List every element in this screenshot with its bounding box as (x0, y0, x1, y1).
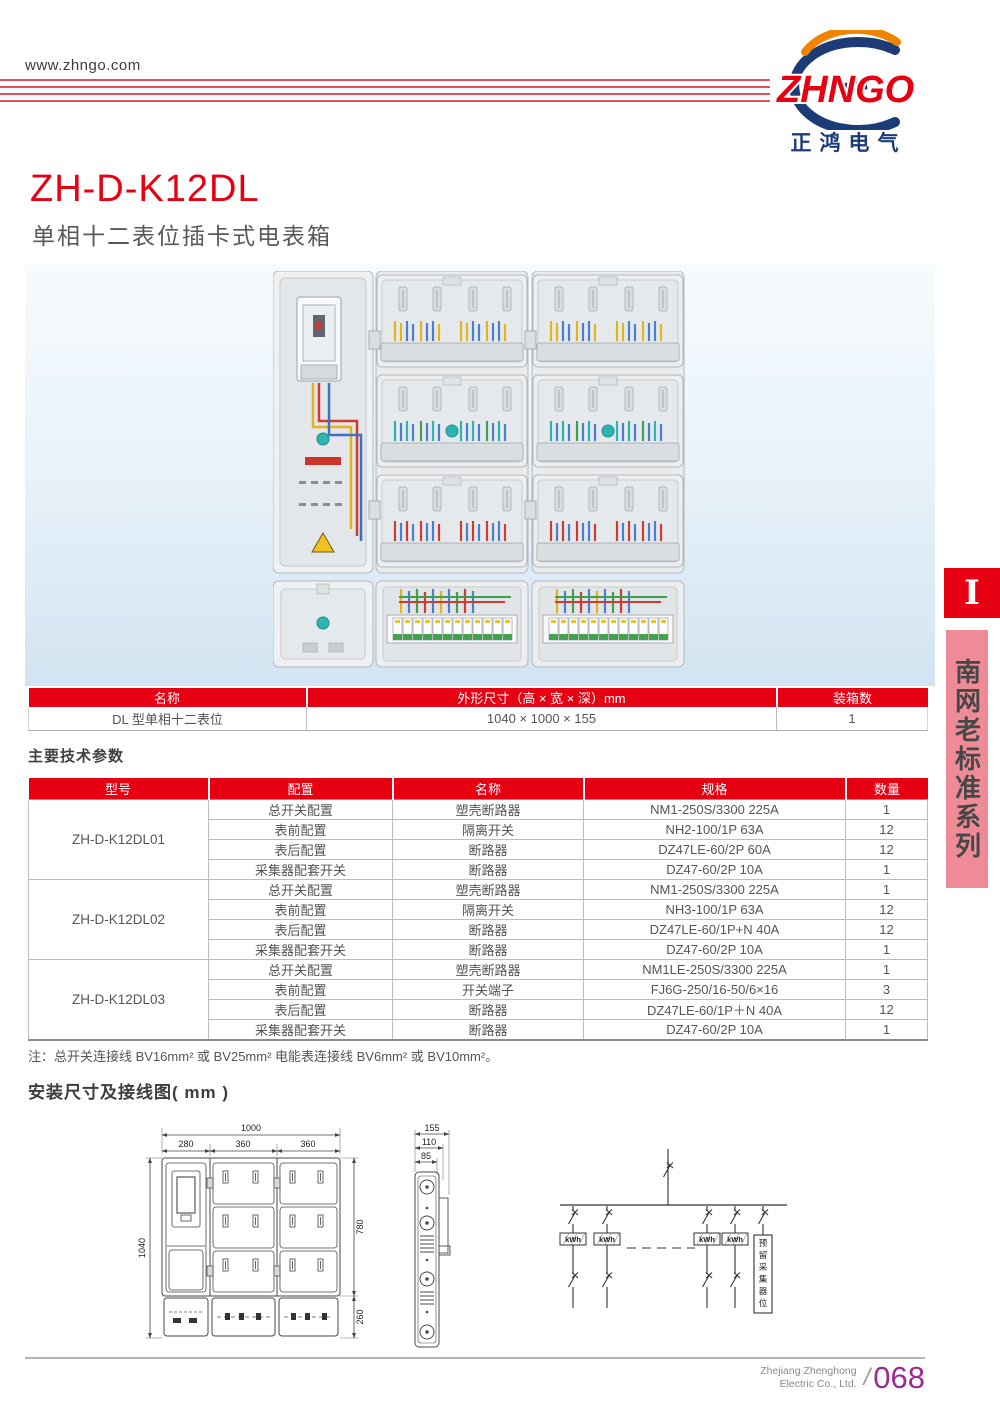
cell-name: 塑壳断路器 (393, 799, 584, 819)
dim-360: 360 (235, 1139, 250, 1149)
meterbox-left-column (273, 271, 373, 573)
cell-qty: 12 (846, 899, 928, 919)
svg-text:预: 预 (759, 1238, 768, 1248)
kwh-meter-label: kWh (699, 1235, 715, 1244)
website-url: www.zhngo.com (25, 57, 141, 74)
company-line2: Electric Co., Ltd. (760, 1378, 856, 1391)
collector-label: 预 留 采 集 器 位 (759, 1238, 768, 1308)
params-header-qty: 数量 (846, 778, 928, 799)
meterbox-right-column (532, 271, 684, 573)
cell-spec: FJ6G-250/16-50/6×16 (584, 979, 846, 999)
spec-header-qty: 装箱数 (777, 688, 928, 707)
cell-config: 采集器配套开关 (209, 1019, 393, 1040)
svg-text:器: 器 (759, 1286, 768, 1296)
cell-config: 总开关配置 (209, 799, 393, 819)
table-row: ZH-D-K12DL03 总开关配置 塑壳断路器 NM1LE-250S/3300… (29, 959, 928, 979)
cell-name: 断路器 (393, 859, 584, 879)
kwh-meter-label: kWh (565, 1235, 581, 1244)
spec-table-row: DL 型单相十二表位 1040 × 1000 × 155 1 (29, 707, 928, 730)
dim-780: 780 (355, 1219, 365, 1234)
spec-header-name: 名称 (29, 688, 307, 707)
model-cell: ZH-D-K12DL01 (29, 799, 209, 879)
cell-name: 开关端子 (393, 979, 584, 999)
cell-config: 采集器配套开关 (209, 939, 393, 959)
spec-cell-name: DL 型单相十二表位 (29, 707, 307, 730)
model-cell: ZH-D-K12DL02 (29, 879, 209, 959)
cell-name: 断路器 (393, 939, 584, 959)
cell-name: 隔离开关 (393, 819, 584, 839)
cell-qty: 12 (846, 999, 928, 1019)
wiring-diagram: kWh kWh kWh kWh 预 留 采 集 器 位 (535, 1143, 815, 1355)
catalog-page: www.zhngo.com ZHNGO 正鸿电气 ZH-D-K12DL 单相十二… (0, 0, 1000, 1421)
spec-cell-qty: 1 (777, 707, 928, 730)
cell-spec: DZ47-60/2P 10A (584, 1019, 846, 1040)
rule-line (0, 93, 770, 95)
cell-spec: NM1-250S/3300 225A (584, 799, 846, 819)
company-line1: Zhejiang Zhenghong (760, 1365, 856, 1378)
cell-qty: 1 (846, 959, 928, 979)
dim-1000: 1000 (241, 1123, 261, 1133)
front-view-drawing: 1000 280 360 360 1040 780 260 (125, 1120, 410, 1363)
dim-280: 280 (178, 1139, 193, 1149)
cell-name: 隔离开关 (393, 899, 584, 919)
svg-text:采: 采 (759, 1262, 768, 1272)
cell-qty: 1 (846, 879, 928, 899)
dim-360b: 360 (300, 1139, 315, 1149)
company-logo: ZHNGO 正鸿电气 (747, 30, 942, 156)
spec-cell-size: 1040 × 1000 × 155 (307, 707, 777, 730)
cell-spec: DZ47-60/2P 10A (584, 939, 846, 959)
series-vertical-tab: 南网老标准系列 (946, 630, 988, 888)
side-view-drawing: 155 110 85 (403, 1120, 515, 1360)
footer: Zhejiang Zhenghong Electric Co., Ltd. / … (760, 1362, 925, 1393)
cell-spec: NM1-250S/3300 225A (584, 879, 846, 899)
cell-name: 断路器 (393, 1019, 584, 1040)
rule-line (0, 79, 770, 81)
params-header-spec: 规格 (584, 778, 846, 799)
cell-spec: DZ47-60/2P 10A (584, 859, 846, 879)
cell-spec: NH3-100/1P 63A (584, 899, 846, 919)
rule-line (0, 86, 770, 88)
params-table: 型号 配置 名称 规格 数量 ZH-D-K12DL01 总开关配置 塑壳断路器 … (28, 778, 928, 1041)
kwh-meter-label: kWh (727, 1235, 743, 1244)
svg-text:位: 位 (759, 1298, 768, 1308)
spec-header-size: 外形尺寸（高 × 宽 × 深）mm (307, 688, 777, 707)
product-photo (273, 271, 688, 669)
section-index-tab: I (944, 568, 1000, 618)
logo-swoosh-graphic: ZHNGO (747, 30, 942, 130)
params-section-title: 主要技术参数 (28, 745, 124, 766)
meter-branches (560, 1206, 748, 1308)
footer-slash: / (864, 1364, 871, 1392)
cell-spec: NM1LE-250S/3300 225A (584, 959, 846, 979)
dim-1040: 1040 (137, 1238, 147, 1258)
dim-155: 155 (424, 1123, 439, 1133)
cell-qty: 1 (846, 859, 928, 879)
params-header-model: 型号 (29, 778, 209, 799)
params-header-row: 型号 配置 名称 规格 数量 (29, 778, 928, 799)
dim-260: 260 (355, 1309, 365, 1324)
model-cell: ZH-D-K12DL03 (29, 959, 209, 1040)
page-subtitle: 单相十二表位插卡式电表箱 (32, 217, 332, 251)
params-header-config: 配置 (209, 778, 393, 799)
logo-brand-cn: 正鸿电气 (747, 127, 942, 157)
table-note: 注：总开关连接线 BV16mm² 或 BV25mm² 电能表连接线 BV6mm²… (28, 1046, 498, 1065)
table-row: ZH-D-K12DL01 总开关配置 塑壳断路器 NM1-250S/3300 2… (29, 799, 928, 819)
spec-table: 名称 外形尺寸（高 × 宽 × 深）mm 装箱数 DL 型单相十二表位 1040… (28, 688, 928, 731)
front-view-hooks (223, 1171, 323, 1271)
cell-config: 表前配置 (209, 899, 393, 919)
cell-name: 断路器 (393, 999, 584, 1019)
cell-spec: DZ47LE-60/1P+N 40A (584, 919, 846, 939)
cell-qty: 12 (846, 839, 928, 859)
dim-110: 110 (422, 1137, 436, 1147)
cell-qty: 1 (846, 1019, 928, 1040)
cell-config: 总开关配置 (209, 879, 393, 899)
cell-config: 表前配置 (209, 819, 393, 839)
cell-config: 采集器配套开关 (209, 859, 393, 879)
header-rule-lines (0, 79, 770, 107)
cell-config: 表后配置 (209, 919, 393, 939)
spec-table-header-row: 名称 外形尺寸（高 × 宽 × 深）mm 装箱数 (29, 688, 928, 707)
svg-text:留: 留 (759, 1250, 768, 1260)
logo-brand-text: ZHNGO (776, 69, 914, 111)
dim-85: 85 (421, 1151, 431, 1161)
params-header-name: 名称 (393, 778, 584, 799)
cell-spec: NH2-100/1P 63A (584, 819, 846, 839)
cell-spec: DZ47LE-60/1P＋N 40A (584, 999, 846, 1019)
cell-spec: DZ47LE-60/2P 60A (584, 839, 846, 859)
cell-name: 断路器 (393, 919, 584, 939)
cell-config: 表后配置 (209, 839, 393, 859)
cell-config: 表前配置 (209, 979, 393, 999)
cell-qty: 3 (846, 979, 928, 999)
cell-config: 总开关配置 (209, 959, 393, 979)
product-photo-band (25, 264, 935, 686)
footer-divider (25, 1357, 925, 1359)
cell-name: 断路器 (393, 839, 584, 859)
svg-text:集: 集 (759, 1274, 768, 1284)
company-name: Zhejiang Zhenghong Electric Co., Ltd. (760, 1365, 856, 1390)
rule-line (0, 100, 770, 102)
cell-qty: 12 (846, 819, 928, 839)
cell-name: 塑壳断路器 (393, 879, 584, 899)
cell-qty: 1 (846, 939, 928, 959)
cell-name: 塑壳断路器 (393, 959, 584, 979)
kwh-meter-label: kWh (599, 1235, 615, 1244)
table-row: ZH-D-K12DL02 总开关配置 塑壳断路器 NM1-250S/3300 2… (29, 879, 928, 899)
install-section-title: 安装尺寸及接线图( mm ) (28, 1078, 229, 1103)
meterbox-bottom-row (273, 581, 684, 667)
cell-qty: 1 (846, 799, 928, 819)
cell-config: 表后配置 (209, 999, 393, 1019)
meterbox-middle-column (376, 271, 528, 573)
page-title: ZH-D-K12DL (30, 168, 260, 211)
cell-qty: 12 (846, 919, 928, 939)
page-number: 068 (873, 1362, 925, 1393)
